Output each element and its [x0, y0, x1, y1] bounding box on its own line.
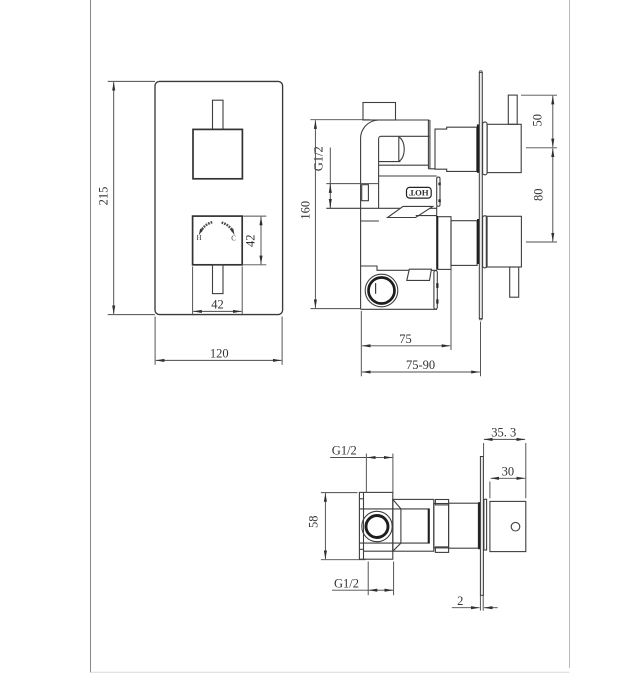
- svg-text:58: 58: [306, 515, 320, 528]
- svg-text:80: 80: [532, 188, 546, 201]
- svg-text:42: 42: [243, 234, 257, 247]
- svg-text:HOT: HOT: [409, 188, 429, 198]
- svg-text:75-90: 75-90: [406, 358, 435, 372]
- svg-text:35. 3: 35. 3: [491, 426, 516, 440]
- svg-text:30: 30: [502, 465, 515, 479]
- svg-text:120: 120: [210, 347, 229, 361]
- svg-text:C: C: [231, 234, 236, 242]
- svg-text:42: 42: [211, 297, 224, 311]
- svg-text:G1/2: G1/2: [312, 146, 326, 171]
- svg-text:G1/2: G1/2: [334, 576, 359, 590]
- svg-text:215: 215: [97, 187, 111, 206]
- svg-text:G1/2: G1/2: [332, 444, 357, 458]
- svg-text:H: H: [196, 234, 201, 242]
- svg-text:75: 75: [399, 332, 412, 346]
- svg-text:50: 50: [531, 114, 545, 127]
- svg-text:2: 2: [457, 594, 463, 608]
- svg-text:160: 160: [298, 201, 312, 220]
